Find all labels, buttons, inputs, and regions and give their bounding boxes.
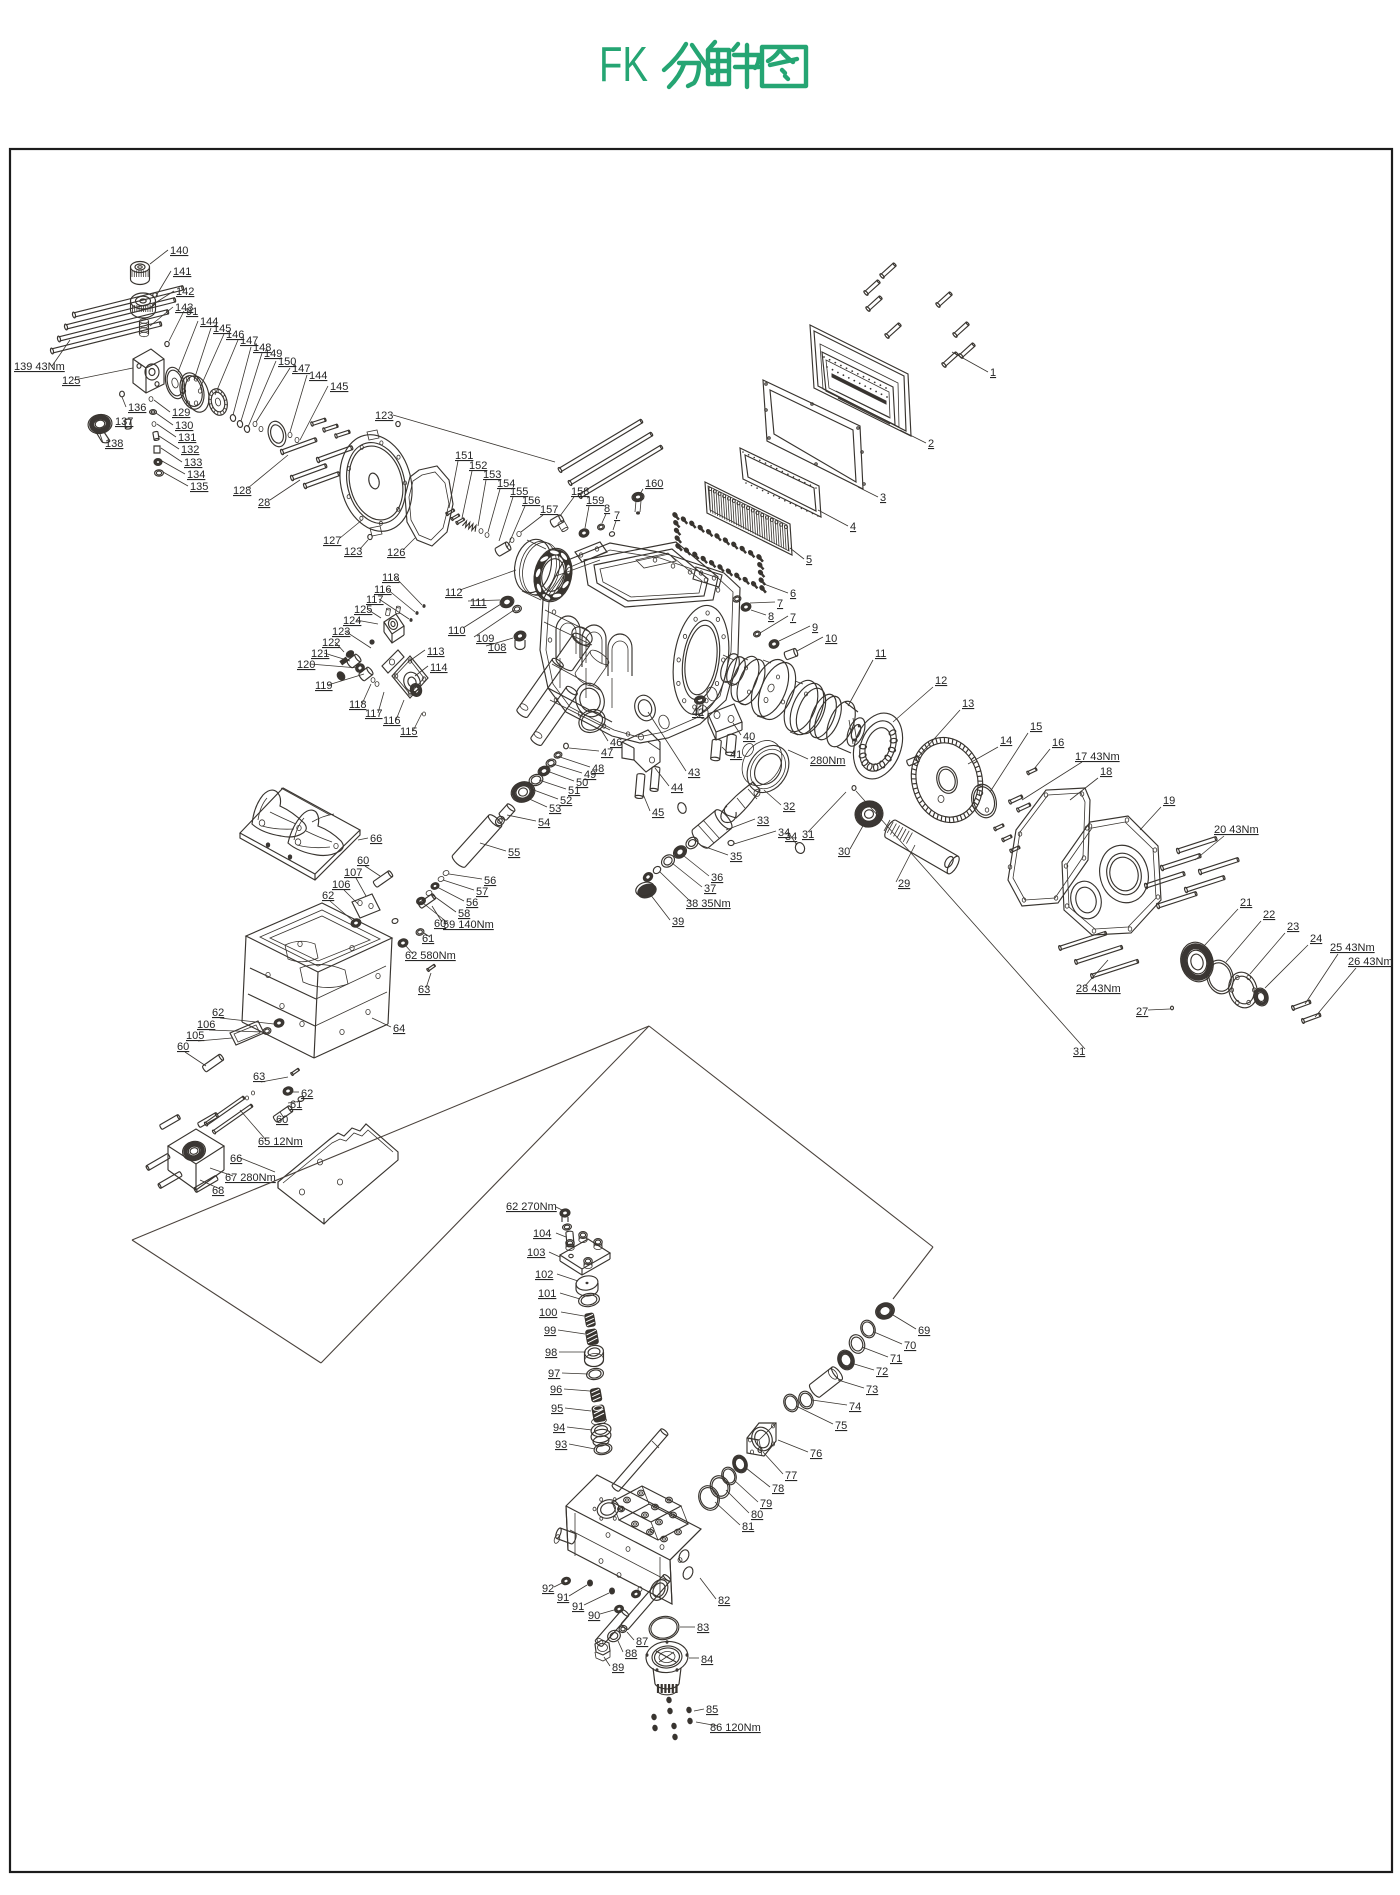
svg-text:134: 134 <box>187 469 205 481</box>
svg-text:126: 126 <box>387 547 405 559</box>
svg-text:5: 5 <box>806 554 812 566</box>
svg-text:85: 85 <box>706 1704 718 1716</box>
svg-text:27: 27 <box>1136 1006 1148 1018</box>
svg-text:62 270Nm: 62 270Nm <box>506 1201 557 1213</box>
svg-text:60: 60 <box>434 918 446 930</box>
svg-text:26 43Nm: 26 43Nm <box>1348 956 1393 968</box>
svg-text:33: 33 <box>757 815 769 827</box>
svg-text:44: 44 <box>671 782 683 794</box>
svg-text:42: 42 <box>692 707 704 719</box>
svg-text:63: 63 <box>418 984 430 996</box>
svg-text:87: 87 <box>636 1636 648 1648</box>
svg-text:123: 123 <box>375 410 393 422</box>
svg-text:129: 129 <box>172 407 190 419</box>
svg-text:6: 6 <box>790 588 796 600</box>
svg-text:88: 88 <box>625 1648 637 1660</box>
svg-text:9: 9 <box>812 622 818 634</box>
svg-text:117: 117 <box>365 708 383 720</box>
svg-text:139 43Nm: 139 43Nm <box>14 361 65 373</box>
svg-text:106: 106 <box>332 879 350 891</box>
svg-text:98: 98 <box>545 1347 557 1359</box>
svg-text:61: 61 <box>422 933 434 945</box>
svg-text:83: 83 <box>697 1622 709 1634</box>
svg-text:123: 123 <box>344 546 362 558</box>
svg-text:110: 110 <box>448 625 466 637</box>
svg-text:60: 60 <box>177 1041 189 1053</box>
svg-text:118: 118 <box>382 572 400 584</box>
svg-text:99: 99 <box>544 1325 556 1337</box>
svg-text:40: 40 <box>743 731 755 743</box>
svg-text:160: 160 <box>645 478 663 490</box>
svg-text:68: 68 <box>212 1185 224 1197</box>
svg-text:24: 24 <box>1310 933 1322 945</box>
svg-text:144: 144 <box>309 370 327 382</box>
svg-text:113: 113 <box>427 646 445 658</box>
svg-text:67 280Nm: 67 280Nm <box>225 1172 276 1184</box>
svg-text:131: 131 <box>178 432 196 444</box>
svg-text:28 43Nm: 28 43Nm <box>1076 983 1121 995</box>
svg-text:70: 70 <box>904 1340 916 1352</box>
svg-text:86 120Nm: 86 120Nm <box>710 1722 761 1734</box>
svg-text:60: 60 <box>357 855 369 867</box>
svg-text:14: 14 <box>1000 735 1012 747</box>
svg-text:138: 138 <box>105 438 123 450</box>
svg-text:136: 136 <box>128 402 146 414</box>
svg-text:16: 16 <box>1052 737 1064 749</box>
svg-text:8: 8 <box>768 611 774 623</box>
svg-text:25 43Nm: 25 43Nm <box>1330 942 1375 954</box>
svg-text:45: 45 <box>652 807 664 819</box>
svg-text:11: 11 <box>875 648 886 660</box>
svg-text:116: 116 <box>383 715 401 727</box>
svg-text:147: 147 <box>292 363 310 375</box>
svg-text:93: 93 <box>555 1439 567 1451</box>
svg-text:32: 32 <box>783 801 795 813</box>
svg-text:12: 12 <box>935 675 947 687</box>
svg-text:89: 89 <box>612 1662 624 1674</box>
svg-text:72: 72 <box>876 1366 888 1378</box>
svg-text:39: 39 <box>672 916 684 928</box>
svg-text:41: 41 <box>730 749 742 761</box>
svg-text:130: 130 <box>175 420 193 432</box>
svg-text:108: 108 <box>488 642 506 654</box>
svg-text:156: 156 <box>522 495 540 507</box>
svg-text:2: 2 <box>928 438 934 450</box>
svg-text:1: 1 <box>990 367 996 379</box>
svg-text:19: 19 <box>1163 795 1175 807</box>
svg-text:3: 3 <box>880 492 886 504</box>
svg-text:13: 13 <box>962 698 974 710</box>
svg-text:100: 100 <box>539 1307 557 1319</box>
svg-text:114: 114 <box>430 662 448 674</box>
svg-text:17 43Nm: 17 43Nm <box>1075 751 1120 763</box>
svg-text:7: 7 <box>614 510 620 522</box>
svg-text:62 580Nm: 62 580Nm <box>405 950 456 962</box>
svg-text:71: 71 <box>890 1353 902 1365</box>
svg-text:52: 52 <box>560 795 572 807</box>
svg-text:91: 91 <box>186 306 198 318</box>
svg-text:75: 75 <box>835 1420 847 1432</box>
svg-text:145: 145 <box>330 381 348 393</box>
svg-text:103: 103 <box>527 1247 545 1259</box>
svg-text:111: 111 <box>470 597 487 609</box>
svg-text:133: 133 <box>184 457 202 469</box>
svg-text:4: 4 <box>850 521 856 533</box>
svg-text:120: 120 <box>297 659 315 671</box>
svg-text:8: 8 <box>604 503 610 515</box>
svg-text:81: 81 <box>742 1521 754 1533</box>
svg-text:74: 74 <box>849 1401 861 1413</box>
svg-text:54: 54 <box>538 817 550 829</box>
svg-text:142: 142 <box>176 286 194 298</box>
svg-text:141: 141 <box>173 266 191 278</box>
svg-text:132: 132 <box>181 444 199 456</box>
svg-text:62: 62 <box>322 890 334 902</box>
svg-text:59 140Nm: 59 140Nm <box>443 919 494 931</box>
svg-text:112: 112 <box>445 587 463 599</box>
svg-text:157: 157 <box>540 504 558 516</box>
svg-text:127: 127 <box>323 535 341 547</box>
svg-text:29: 29 <box>898 878 910 890</box>
svg-text:10: 10 <box>825 633 837 645</box>
svg-text:20 43Nm: 20 43Nm <box>1214 824 1259 836</box>
svg-text:78: 78 <box>772 1483 784 1495</box>
svg-text:62: 62 <box>301 1088 313 1100</box>
svg-text:102: 102 <box>535 1269 553 1281</box>
svg-text:91: 91 <box>557 1592 569 1604</box>
svg-text:62: 62 <box>212 1007 224 1019</box>
svg-text:30: 30 <box>838 846 850 858</box>
svg-text:7: 7 <box>777 598 783 610</box>
svg-text:90: 90 <box>588 1610 600 1622</box>
svg-text:128: 128 <box>233 485 251 497</box>
svg-text:82: 82 <box>718 1595 730 1607</box>
svg-text:159: 159 <box>586 495 604 507</box>
svg-text:84: 84 <box>701 1654 713 1666</box>
svg-text:101: 101 <box>538 1288 556 1300</box>
svg-text:140: 140 <box>170 245 188 257</box>
svg-text:28: 28 <box>258 497 270 509</box>
svg-text:37: 37 <box>704 883 716 895</box>
svg-text:107: 107 <box>344 867 362 879</box>
svg-text:35: 35 <box>730 851 742 863</box>
svg-text:47: 47 <box>601 747 613 759</box>
svg-text:280Nm: 280Nm <box>810 755 845 767</box>
svg-text:64: 64 <box>393 1023 405 1035</box>
svg-text:119: 119 <box>315 680 333 692</box>
svg-text:53: 53 <box>549 803 561 815</box>
svg-text:7: 7 <box>790 612 796 624</box>
svg-text:21: 21 <box>1240 897 1252 909</box>
svg-text:73: 73 <box>866 1384 878 1396</box>
svg-text:31: 31 <box>802 829 814 841</box>
svg-text:23: 23 <box>1287 921 1299 933</box>
svg-text:97: 97 <box>548 1368 560 1380</box>
svg-text:15: 15 <box>1030 721 1042 733</box>
svg-text:55: 55 <box>508 847 520 859</box>
svg-text:22: 22 <box>1263 909 1275 921</box>
svg-text:137: 137 <box>115 416 133 428</box>
svg-text:91: 91 <box>572 1601 584 1613</box>
svg-text:61: 61 <box>290 1099 302 1111</box>
svg-text:38 35Nm: 38 35Nm <box>686 898 731 910</box>
svg-text:95: 95 <box>551 1403 563 1415</box>
svg-text:77: 77 <box>785 1470 797 1482</box>
svg-text:76: 76 <box>810 1448 822 1460</box>
svg-text:92: 92 <box>542 1583 554 1595</box>
svg-text:66: 66 <box>230 1153 242 1165</box>
svg-text:69: 69 <box>918 1325 930 1337</box>
svg-text:96: 96 <box>550 1384 562 1396</box>
svg-text:104: 104 <box>533 1228 551 1240</box>
svg-text:66: 66 <box>370 833 382 845</box>
svg-text:135: 135 <box>190 481 208 493</box>
svg-text:80: 80 <box>751 1509 763 1521</box>
svg-text:18: 18 <box>1100 766 1112 778</box>
svg-text:125: 125 <box>62 375 80 387</box>
svg-text:FK: FK <box>599 38 648 92</box>
svg-text:94: 94 <box>553 1422 565 1434</box>
svg-text:65 12Nm: 65 12Nm <box>258 1136 303 1148</box>
svg-text:118: 118 <box>349 699 367 711</box>
svg-text:43: 43 <box>688 767 700 779</box>
